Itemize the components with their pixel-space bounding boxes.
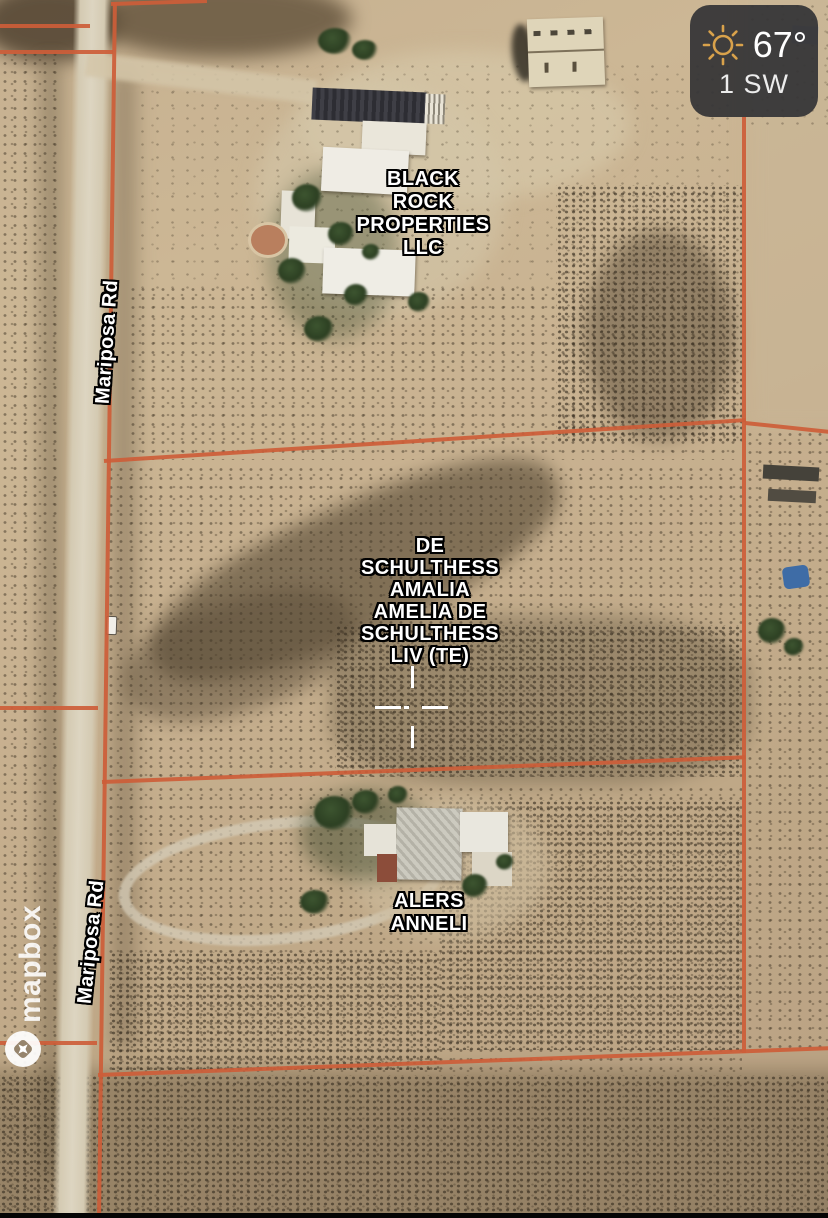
crosshair-left-arm	[375, 706, 401, 709]
tree	[344, 284, 368, 306]
tree	[352, 790, 380, 814]
weather-widget[interactable]: 67° 1 SW	[690, 5, 818, 117]
barn-marks	[544, 61, 584, 72]
adobe-circle-feature	[248, 222, 288, 258]
tree	[408, 292, 430, 312]
tree	[318, 28, 352, 54]
roof-texture	[395, 807, 462, 880]
tree	[292, 184, 322, 212]
label-line: ROCK	[333, 191, 513, 214]
tree	[278, 258, 306, 284]
tree	[496, 854, 514, 870]
label-line: AMELIA DE	[320, 601, 540, 623]
parcel-line-mid-upper	[104, 418, 746, 462]
label-line: DE	[320, 535, 540, 557]
container-structure-1	[763, 465, 820, 482]
parcel-line-topleft-2	[0, 50, 113, 54]
building-alers-small	[364, 824, 396, 856]
parcel-line-west-mid	[0, 706, 98, 710]
label-line: AMALIA	[320, 579, 540, 601]
bottom-letterbox-bar	[0, 1213, 828, 1218]
label-line: SCHULTHESS	[320, 623, 540, 645]
sun-icon	[701, 23, 745, 67]
barn-vents	[533, 29, 597, 36]
mapbox-wordmark[interactable]: mapbox	[14, 883, 46, 1045]
crosshair-bottom-arm	[411, 726, 414, 748]
tree	[784, 638, 804, 656]
tree	[758, 618, 786, 644]
parcel-label-de-schulthess: DE SCHULTHESS AMALIA AMELIA DE SCHULTHES…	[320, 535, 540, 667]
label-line: LLC	[333, 237, 513, 260]
crosshair-right-arm	[422, 706, 448, 709]
crosshair-top-arm	[411, 666, 414, 688]
tree	[352, 40, 378, 60]
temperature-value: 67°	[753, 24, 807, 66]
tree	[388, 786, 408, 804]
label-line: ANNELI	[349, 913, 509, 936]
terrain-dark-brush-top	[92, 0, 352, 58]
barn-ridge-line	[528, 49, 604, 54]
parcel-label-alers: ALERS ANNELI	[349, 890, 509, 936]
label-line: LIV (TE)	[320, 645, 540, 667]
blue-tarp	[782, 564, 811, 589]
speckle-right-lower	[745, 430, 828, 1050]
terrain-bottom-dark	[0, 1070, 828, 1218]
building-dark-roof-barn	[311, 88, 426, 125]
parcel-line-topleft-1	[0, 24, 90, 28]
parcel-label-black-rock: BLACK ROCK PROPERTIES LLC	[333, 168, 513, 260]
label-line: ALERS	[349, 890, 509, 913]
speckle-alers-lower-left	[110, 952, 440, 1070]
mapbox-logo-icon[interactable]	[3, 1029, 43, 1069]
terrain-dark-strip-right	[585, 230, 735, 440]
building-alers-east-wing	[460, 812, 508, 852]
building-dark-roof-end	[424, 94, 445, 125]
building-alers-red	[377, 854, 397, 882]
satellite-map-canvas[interactable]: BLACK ROCK PROPERTIES LLC DE SCHULTHESS …	[0, 0, 828, 1218]
building-alers-main	[395, 807, 462, 880]
weather-row-temp: 67°	[701, 23, 807, 67]
tree	[300, 890, 330, 914]
label-line: PROPERTIES	[333, 214, 513, 237]
crosshair-left-dash	[404, 706, 409, 709]
parcel-line-east-vertical	[742, 117, 746, 1053]
label-line: BLACK	[333, 168, 513, 191]
label-line: SCHULTHESS	[320, 557, 540, 579]
tree	[314, 796, 354, 830]
container-structure-2	[768, 489, 817, 503]
tree	[304, 316, 334, 342]
wind-value: 1 SW	[719, 69, 789, 100]
building-tan-barn	[527, 17, 605, 88]
